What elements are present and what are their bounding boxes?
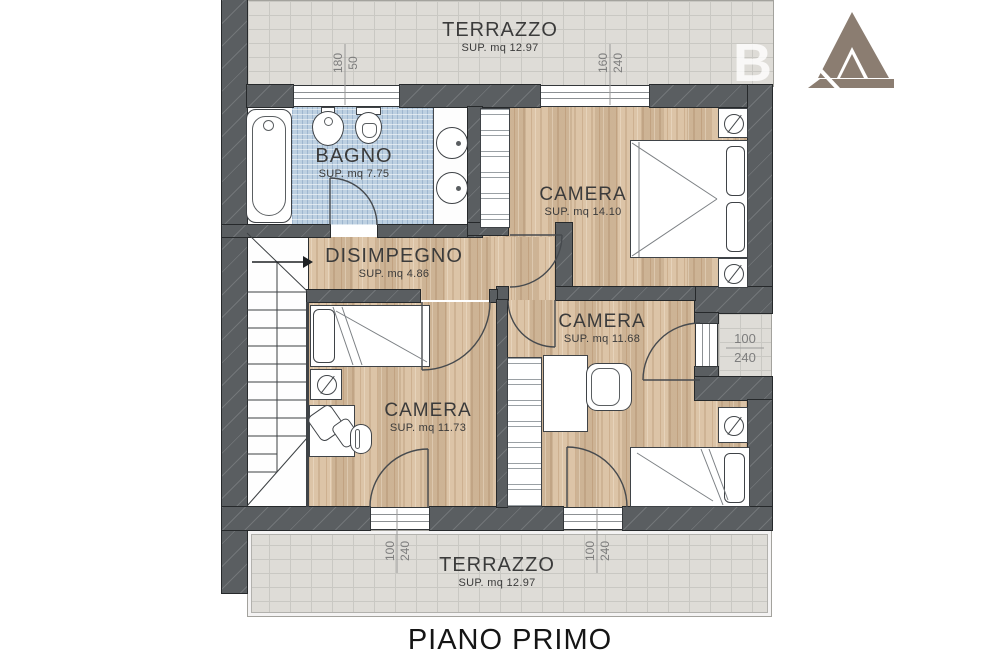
room-area: SUP. mq 11.73 — [318, 423, 538, 435]
dim-camera-grande-window-w: 160 — [596, 45, 610, 81]
brand-logo-icon — [808, 12, 894, 92]
watermark-letter: B — [733, 32, 772, 94]
dim-camera-media-window-w: 100 — [726, 331, 764, 346]
room-label-camera-media: CAMERA SUP. mq 11.68 — [492, 312, 712, 345]
dim-terrace-door-left-w: 100 — [383, 533, 397, 569]
dim-bagno-window-h: 50 — [346, 45, 360, 81]
room-area: SUP. mq 11.68 — [492, 334, 712, 346]
room-name: CAMERA — [318, 401, 538, 421]
dim-camera-media-window-h: 240 — [726, 350, 764, 365]
room-label-disimpegno: DISIMPEGNO SUP. mq 4.86 — [284, 246, 504, 281]
dim-terrace-door-right-h: 240 — [598, 533, 612, 569]
page-title: PIANO PRIMO — [310, 624, 710, 657]
room-area: SUP. mq 14.10 — [473, 207, 693, 219]
room-label-bagno: BAGNO SUP. mq 7.75 — [244, 146, 464, 181]
room-label-terrazzo-bottom: TERRAZZO SUP. mq 12.97 — [387, 555, 607, 590]
dim-terrace-door-left-h: 240 — [398, 533, 412, 569]
dim-camera-grande-window-h: 240 — [611, 45, 625, 81]
room-area: SUP. mq 12.97 — [390, 43, 610, 55]
room-name: DISIMPEGNO — [284, 246, 504, 267]
room-name: CAMERA — [492, 312, 712, 332]
dim-terrace-door-right-w: 100 — [583, 533, 597, 569]
room-name: TERRAZZO — [390, 20, 610, 41]
room-label-camera-piccola: CAMERA SUP. mq 11.73 — [318, 401, 538, 434]
room-label-camera-grande: CAMERA SUP. mq 14.10 — [473, 185, 693, 218]
room-name: CAMERA — [473, 185, 693, 205]
room-area: SUP. mq 7.75 — [244, 169, 464, 181]
room-area: SUP. mq 12.97 — [387, 578, 607, 590]
dim-bagno-window-w: 180 — [331, 45, 345, 81]
floor-plan: TERRAZZO SUP. mq 12.97 BAGNO SUP. mq 7.7… — [0, 0, 986, 660]
room-name: BAGNO — [244, 146, 464, 167]
room-name: TERRAZZO — [387, 555, 607, 576]
room-area: SUP. mq 4.86 — [284, 269, 504, 281]
room-label-terrazzo-top: TERRAZZO SUP. mq 12.97 — [390, 20, 610, 55]
